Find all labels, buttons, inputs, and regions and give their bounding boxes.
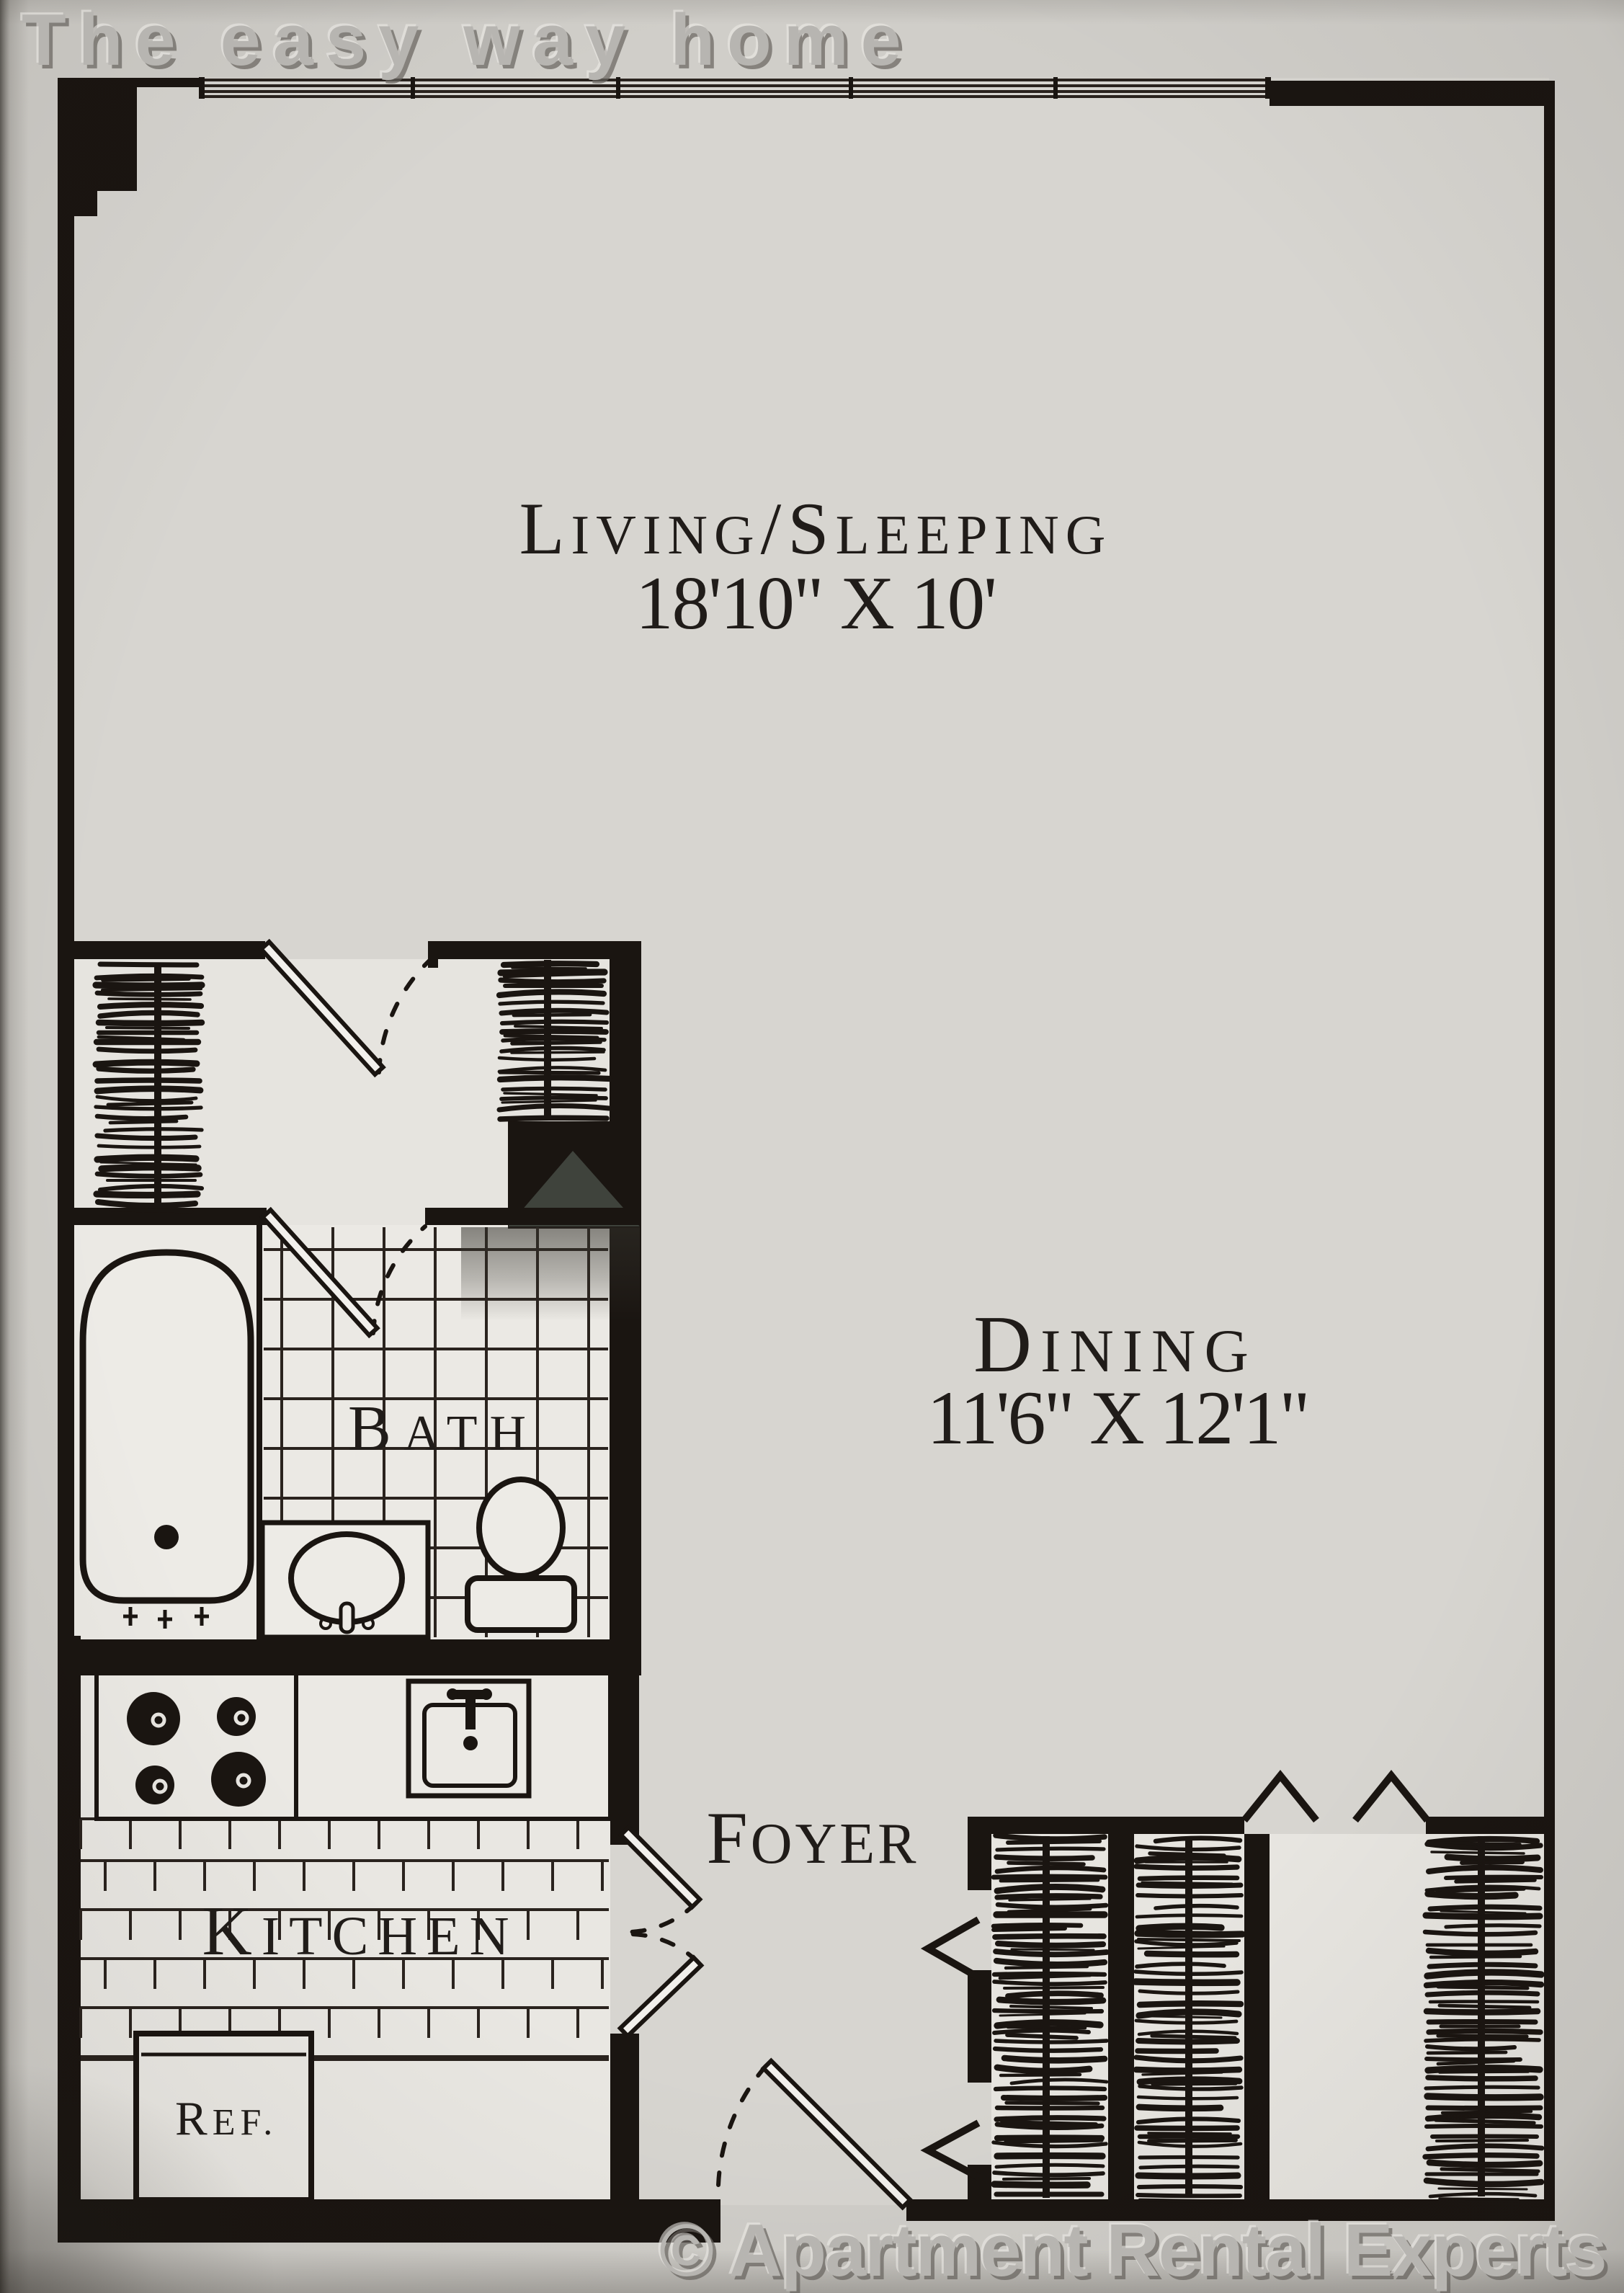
svg-text:© Apartment Rental Experts: © Apartment Rental Experts <box>659 2209 1606 2292</box>
svg-text:The easy way home: The easy way home <box>22 0 914 81</box>
